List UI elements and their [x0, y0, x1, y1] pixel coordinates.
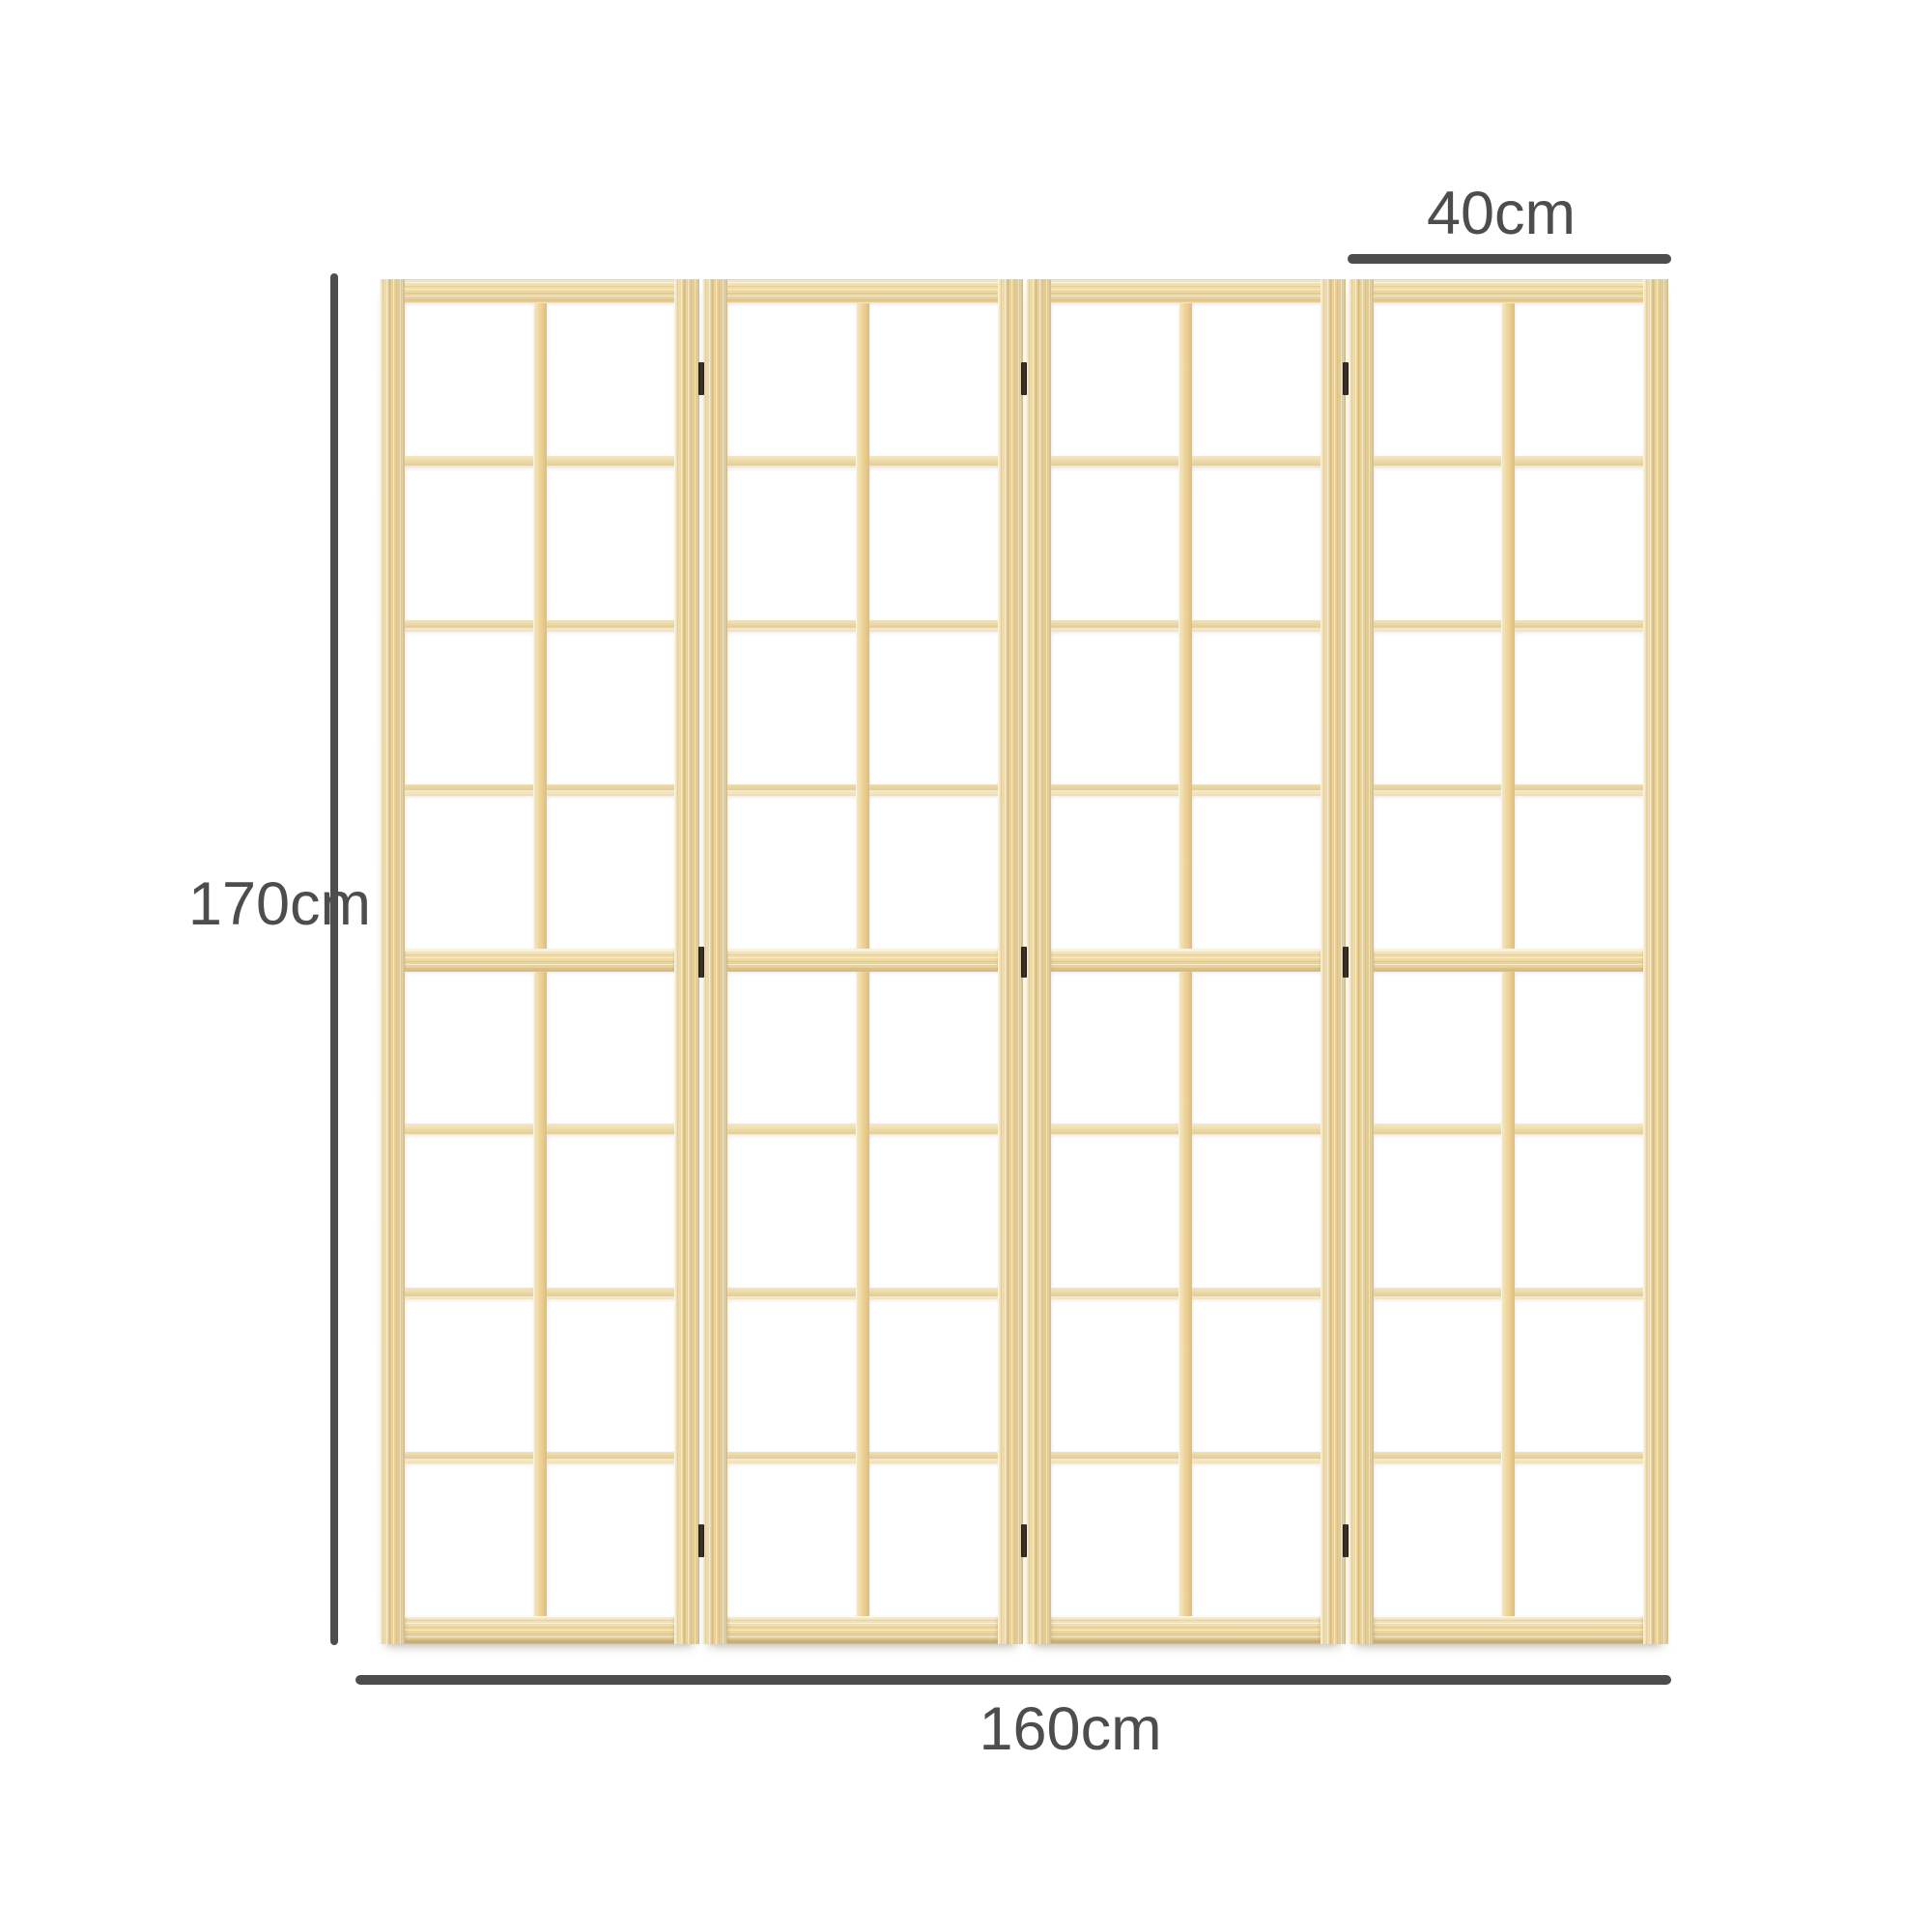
panel-cell	[1051, 1135, 1179, 1288]
width-dimension-line	[355, 1675, 1671, 1685]
panel-middle-rail	[1374, 949, 1643, 972]
height-dimension-line	[330, 273, 338, 1645]
panel-right-stile	[674, 279, 699, 1644]
panel-grid-top-half	[1051, 303, 1321, 949]
panel-cell	[405, 1463, 533, 1616]
panel-cell	[547, 468, 675, 620]
panel-cell	[1515, 303, 1643, 456]
panel-cell	[1374, 1299, 1502, 1452]
panel-top-rail	[1374, 279, 1643, 303]
panel-cell	[405, 303, 533, 456]
hinge	[1021, 947, 1027, 978]
panel-cell	[1051, 1463, 1179, 1616]
hinge	[1343, 947, 1349, 978]
panel-right-stile	[998, 279, 1023, 1644]
panel-cell	[869, 303, 998, 456]
panel-cell	[405, 1135, 533, 1288]
panel-cell	[727, 1135, 856, 1288]
panel-cell	[1192, 1299, 1321, 1452]
panel-cell	[1192, 1135, 1321, 1288]
panel-left-stile	[1349, 279, 1374, 1644]
panel-cell	[547, 972, 675, 1124]
panel-middle-rail	[1051, 949, 1321, 972]
panel-right-stile	[1643, 279, 1668, 1644]
panel-width-dimension-label: 40cm	[1356, 178, 1646, 249]
panel-cell	[1192, 796, 1321, 949]
panel	[1026, 279, 1346, 1644]
panel-grid-bottom-half	[727, 972, 997, 1617]
hinge	[1343, 1524, 1349, 1557]
panel-cell	[1374, 632, 1502, 784]
panel-cell	[1374, 303, 1502, 456]
panel-cell	[547, 303, 675, 456]
panel-bottom-rail	[1374, 1616, 1643, 1644]
panel-cell	[869, 1135, 998, 1288]
hinge	[1343, 362, 1349, 395]
hinge	[698, 1524, 704, 1557]
panel-cell	[1051, 972, 1179, 1124]
panel-cell	[1515, 1463, 1643, 1616]
panel-cell	[547, 1299, 675, 1452]
panel-grid-top-half	[1374, 303, 1643, 949]
panel-cell	[1192, 303, 1321, 456]
panel-cell	[1515, 972, 1643, 1124]
panel-cell	[1515, 632, 1643, 784]
panel-grid-bottom-half	[405, 972, 674, 1617]
panel-cell	[1374, 1463, 1502, 1616]
panel-cell	[405, 632, 533, 784]
panel-cell	[727, 796, 856, 949]
panel-cell	[547, 796, 675, 949]
panel-grid-bottom-half	[1051, 972, 1321, 1617]
panel-center	[1374, 279, 1643, 1644]
panel-cell	[1051, 632, 1179, 784]
panel-cell	[547, 632, 675, 784]
panel-cell	[1515, 468, 1643, 620]
panel-width-dimension-line	[1348, 254, 1671, 264]
panel-cell	[869, 1299, 998, 1452]
panel-cell	[869, 632, 998, 784]
panel-left-stile	[380, 279, 405, 1644]
panel-cell	[547, 1135, 675, 1288]
panel-left-stile	[702, 279, 727, 1644]
panel-cell	[1374, 796, 1502, 949]
panel-left-stile	[1026, 279, 1051, 1644]
panel	[1349, 279, 1668, 1644]
panel-cell	[1374, 1135, 1502, 1288]
panel-bottom-rail	[1051, 1616, 1321, 1644]
panel-grid-top-half	[405, 303, 674, 949]
panel-cell	[869, 972, 998, 1124]
panel-center	[1051, 279, 1321, 1644]
panel-cell	[727, 303, 856, 456]
panel-bottom-rail	[727, 1616, 997, 1644]
panel-grid-top-half	[727, 303, 997, 949]
hinge	[1021, 362, 1027, 395]
panel-cell	[1051, 1299, 1179, 1452]
room-divider	[380, 279, 1668, 1644]
panel-cell	[405, 468, 533, 620]
panel-cell	[1515, 796, 1643, 949]
panel-cell	[1051, 303, 1179, 456]
panel-cell	[869, 1463, 998, 1616]
panel-center	[727, 279, 997, 1644]
panel-cell	[869, 796, 998, 949]
panel-bottom-rail	[405, 1616, 674, 1644]
hinge	[698, 362, 704, 395]
panel-cell	[727, 1463, 856, 1616]
panel-cell	[1374, 468, 1502, 620]
panel-cell	[727, 1299, 856, 1452]
panel-top-rail	[1051, 279, 1321, 303]
panel-cell	[405, 1299, 533, 1452]
panel-cell	[727, 468, 856, 620]
hinge	[1021, 1524, 1027, 1557]
panel-cell	[547, 1463, 675, 1616]
panel-cell	[869, 468, 998, 620]
panel-cell	[1192, 972, 1321, 1124]
hinge	[698, 947, 704, 978]
panel-cell	[1192, 468, 1321, 620]
panel-top-rail	[405, 279, 674, 303]
panel-cell	[1374, 972, 1502, 1124]
panel-middle-rail	[405, 949, 674, 972]
panel-grid-bottom-half	[1374, 972, 1643, 1617]
panel-cell	[1515, 1299, 1643, 1452]
panel-middle-rail	[727, 949, 997, 972]
panel-center	[405, 279, 674, 1644]
panel	[702, 279, 1022, 1644]
panel-cell	[405, 796, 533, 949]
panel-cell	[1051, 468, 1179, 620]
width-dimension-label: 160cm	[925, 1693, 1215, 1765]
product-dimension-image: 170cm 40cm 160cm	[0, 0, 1932, 1932]
panel-cell	[1192, 632, 1321, 784]
panel-right-stile	[1321, 279, 1346, 1644]
panel-cell	[405, 972, 533, 1124]
height-dimension-label: 170cm	[81, 868, 371, 940]
panel-top-rail	[727, 279, 997, 303]
panel-cell	[1192, 1463, 1321, 1616]
panel-cell	[727, 972, 856, 1124]
panel	[380, 279, 699, 1644]
panel-cell	[1051, 796, 1179, 949]
panel-cell	[727, 632, 856, 784]
panel-cell	[1515, 1135, 1643, 1288]
